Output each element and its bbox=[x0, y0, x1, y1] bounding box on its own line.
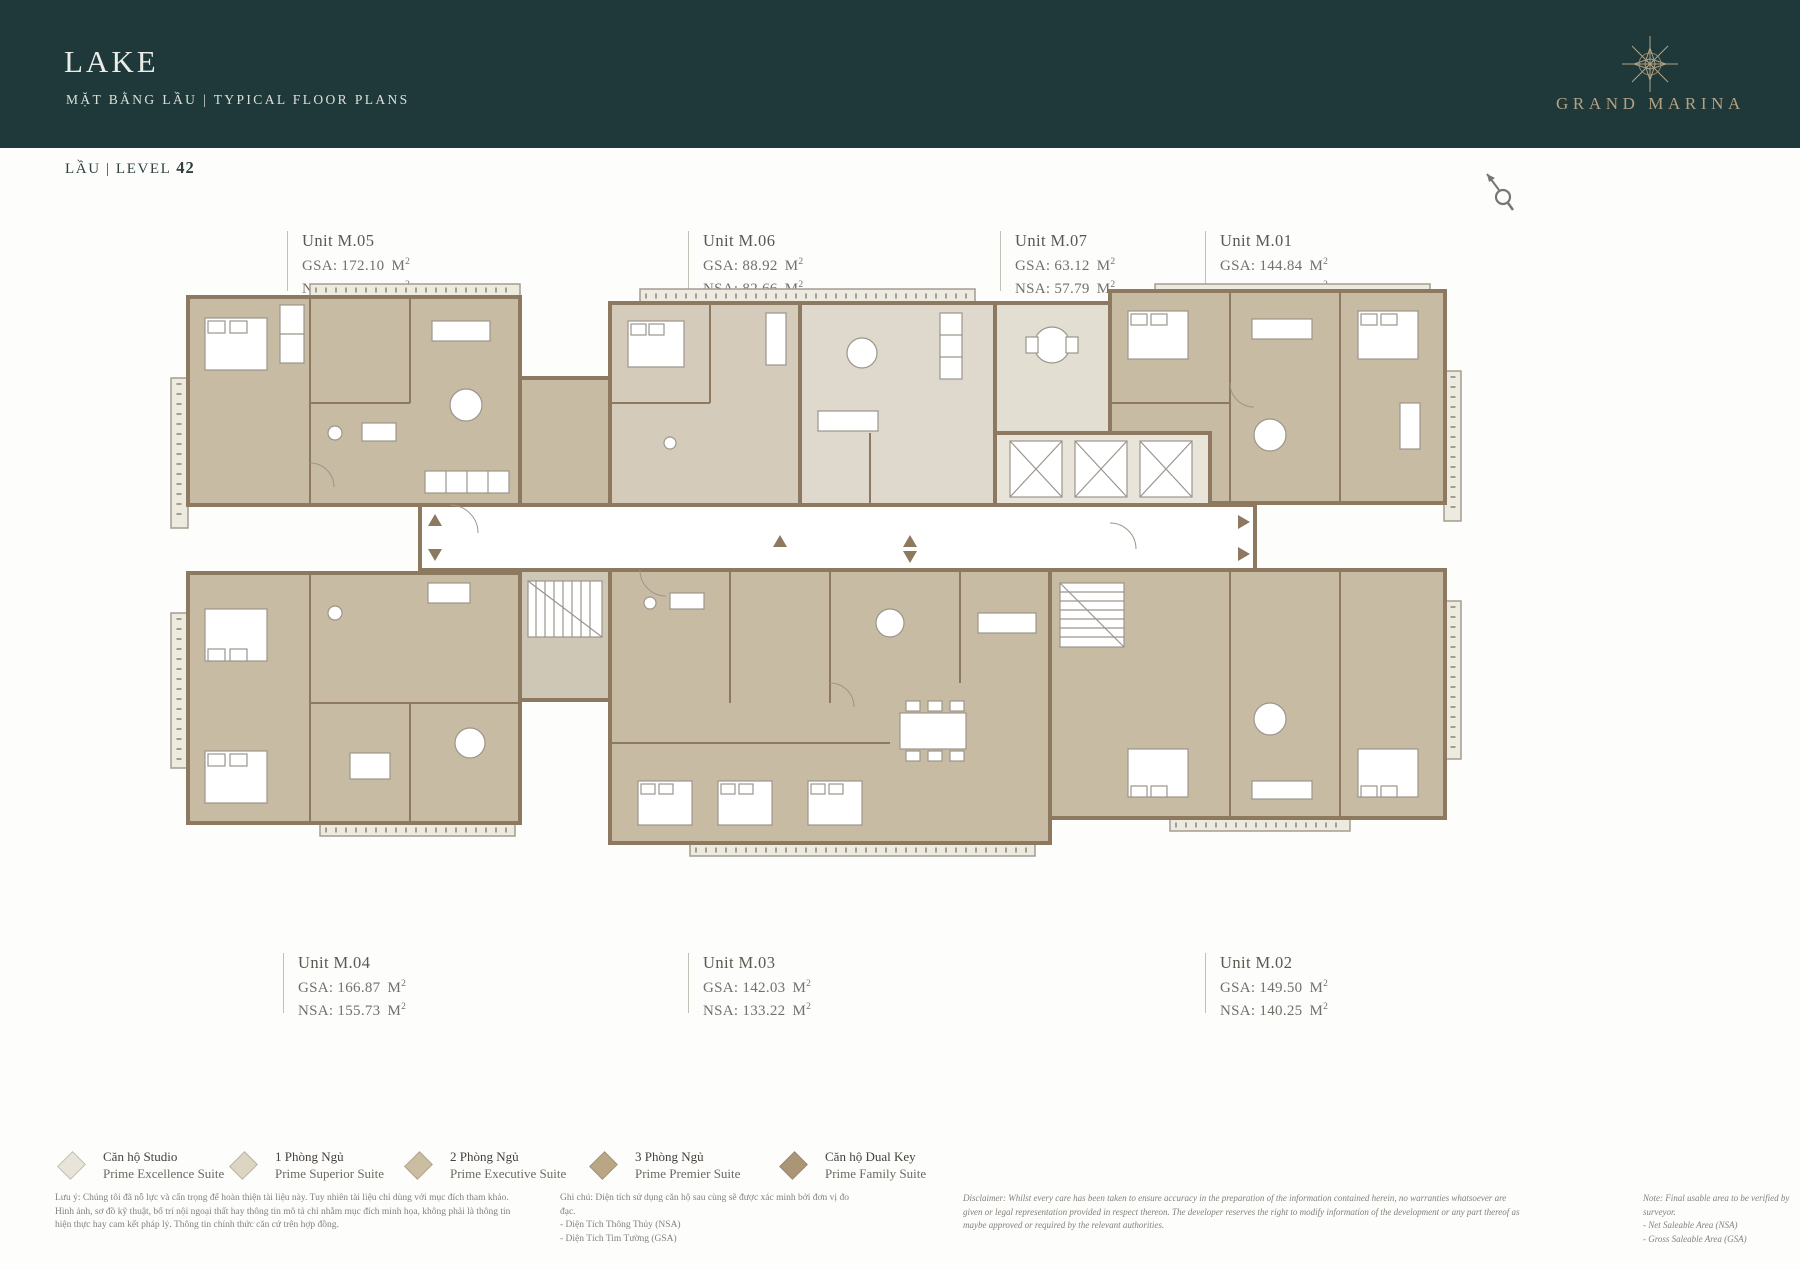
corridor bbox=[420, 505, 1255, 570]
legend-item-3br: 3 Phòng NgủPrime Premier Suite bbox=[592, 1148, 782, 1182]
unit-name: Unit M.02 bbox=[1220, 953, 1328, 973]
unit-gsa: GSA: 172.10M2 bbox=[302, 253, 410, 276]
unit-gsa: GSA: 63.12M2 bbox=[1015, 253, 1115, 276]
legend-label-en: Prime Premier Suite bbox=[635, 1165, 740, 1182]
diamond-icon bbox=[779, 1151, 808, 1180]
diamond-icon bbox=[57, 1151, 86, 1180]
footnote-ghi-chu: Ghi chú: Diện tích sử dụng căn hộ sau cù… bbox=[560, 1192, 860, 1246]
note-title: Note: Final usable area to be verified b… bbox=[1643, 1192, 1793, 1219]
level-prefix: LẦU | LEVEL bbox=[65, 161, 171, 177]
diamond-icon bbox=[229, 1151, 258, 1180]
footnote-disclaimer: Disclaimer: Whilst every care has been t… bbox=[963, 1192, 1525, 1233]
unit-name: Unit M.07 bbox=[1015, 231, 1115, 251]
legend-item-studio: Căn hộ StudioPrime Excellence Suite bbox=[60, 1148, 232, 1182]
unit-name: Unit M.04 bbox=[298, 953, 406, 973]
footnote-note: Note: Final usable area to be verified b… bbox=[1643, 1192, 1793, 1246]
legend-label-vi: 1 Phòng Ngủ bbox=[275, 1148, 384, 1165]
unit-gsa: GSA: 166.87M2 bbox=[298, 975, 406, 998]
unit-nsa: NSA: 140.25M2 bbox=[1220, 998, 1328, 1021]
unit-label-m06: Unit M.06 GSA: 88.92M2 NSA: 82.66M2 bbox=[688, 231, 803, 291]
unit-name: Unit M.03 bbox=[703, 953, 811, 973]
unit-label-m03: Unit M.03 GSA: 142.03M2 NSA: 133.22M2 bbox=[688, 953, 811, 1013]
legend-item-1br: 1 Phòng NgủPrime Superior Suite bbox=[232, 1148, 407, 1182]
unit-name: Unit M.06 bbox=[703, 231, 803, 251]
elevators bbox=[1010, 441, 1192, 497]
diamond-icon bbox=[589, 1151, 618, 1180]
legend-label-en: Prime Family Suite bbox=[825, 1165, 926, 1182]
note-nsa: - Net Saleable Area (NSA) bbox=[1643, 1219, 1793, 1233]
ghi-chu-title: Ghi chú: Diện tích sử dụng căn hộ sau cù… bbox=[560, 1192, 860, 1219]
page-subtitle: MẶT BẰNG LẦU | TYPICAL FLOOR PLANS bbox=[66, 92, 410, 108]
legend-label-en: Prime Superior Suite bbox=[275, 1165, 384, 1182]
legend-label-en: Prime Executive Suite bbox=[450, 1165, 566, 1182]
note-gsa: - Gross Saleable Area (GSA) bbox=[1643, 1233, 1793, 1247]
compass-rose-icon bbox=[1620, 34, 1680, 94]
page-title: LAKE bbox=[64, 44, 159, 80]
unit-label-m05: Unit M.05 GSA: 172.10M2 NSA: 159.69M2 bbox=[287, 231, 410, 291]
unit-label-m07: Unit M.07 GSA: 63.12M2 NSA: 57.79M2 bbox=[1000, 231, 1115, 291]
unit-label-m01: Unit M.01 GSA: 144.84M2 NSA: 135.54M2 bbox=[1205, 231, 1328, 291]
unit-nsa: NSA: 155.73M2 bbox=[298, 998, 406, 1021]
terrace-region bbox=[995, 303, 1110, 433]
floor-plan-page: LAKE MẶT BẰNG LẦU | TYPICAL FLOOR PLANS … bbox=[0, 0, 1800, 1270]
unit-gsa: GSA: 88.92M2 bbox=[703, 253, 803, 276]
unit-gsa: GSA: 144.84M2 bbox=[1220, 253, 1328, 276]
footnote-luu-y: Lưu ý: Chúng tôi đã nỗ lực và cẩn trọng … bbox=[55, 1192, 523, 1233]
unit-nsa: NSA: 133.22M2 bbox=[703, 998, 811, 1021]
floor-plan-drawing bbox=[170, 283, 1462, 875]
unit-m07-region bbox=[800, 303, 995, 505]
legend-label-vi: Căn hộ Dual Key bbox=[825, 1148, 926, 1165]
unit-name: Unit M.01 bbox=[1220, 231, 1328, 251]
legend-label-vi: 2 Phòng Ngủ bbox=[450, 1148, 566, 1165]
legend-label-vi: 3 Phòng Ngủ bbox=[635, 1148, 740, 1165]
legend-item-2br: 2 Phòng NgủPrime Executive Suite bbox=[407, 1148, 592, 1182]
unit-name: Unit M.05 bbox=[302, 231, 410, 251]
header-band: LAKE MẶT BẰNG LẦU | TYPICAL FLOOR PLANS … bbox=[0, 0, 1800, 148]
unit-gsa: GSA: 149.50M2 bbox=[1220, 975, 1328, 998]
legend-item-dual-key: Căn hộ Dual KeyPrime Family Suite bbox=[782, 1148, 982, 1182]
diamond-icon bbox=[404, 1151, 433, 1180]
level-label: LẦU | LEVEL 42 bbox=[65, 158, 195, 178]
brand-logo-text: GRAND MARINA bbox=[1556, 94, 1746, 114]
level-number: 42 bbox=[176, 158, 195, 177]
legend-label-en: Prime Excellence Suite bbox=[103, 1165, 224, 1182]
ghi-chu-nsa: - Diện Tích Thông Thủy (NSA) bbox=[560, 1219, 860, 1233]
legend-label-vi: Căn hộ Studio bbox=[103, 1148, 224, 1165]
unit-label-m02: Unit M.02 GSA: 149.50M2 NSA: 140.25M2 bbox=[1205, 953, 1328, 1013]
unit-label-m04: Unit M.04 GSA: 166.87M2 NSA: 155.73M2 bbox=[283, 953, 406, 1013]
ghi-chu-gsa: - Diện Tích Tim Tường (GSA) bbox=[560, 1233, 860, 1247]
unit-gsa: GSA: 142.03M2 bbox=[703, 975, 811, 998]
zoom-cursor-icon bbox=[1483, 170, 1517, 214]
legend: Căn hộ StudioPrime Excellence Suite 1 Ph… bbox=[60, 1148, 982, 1182]
